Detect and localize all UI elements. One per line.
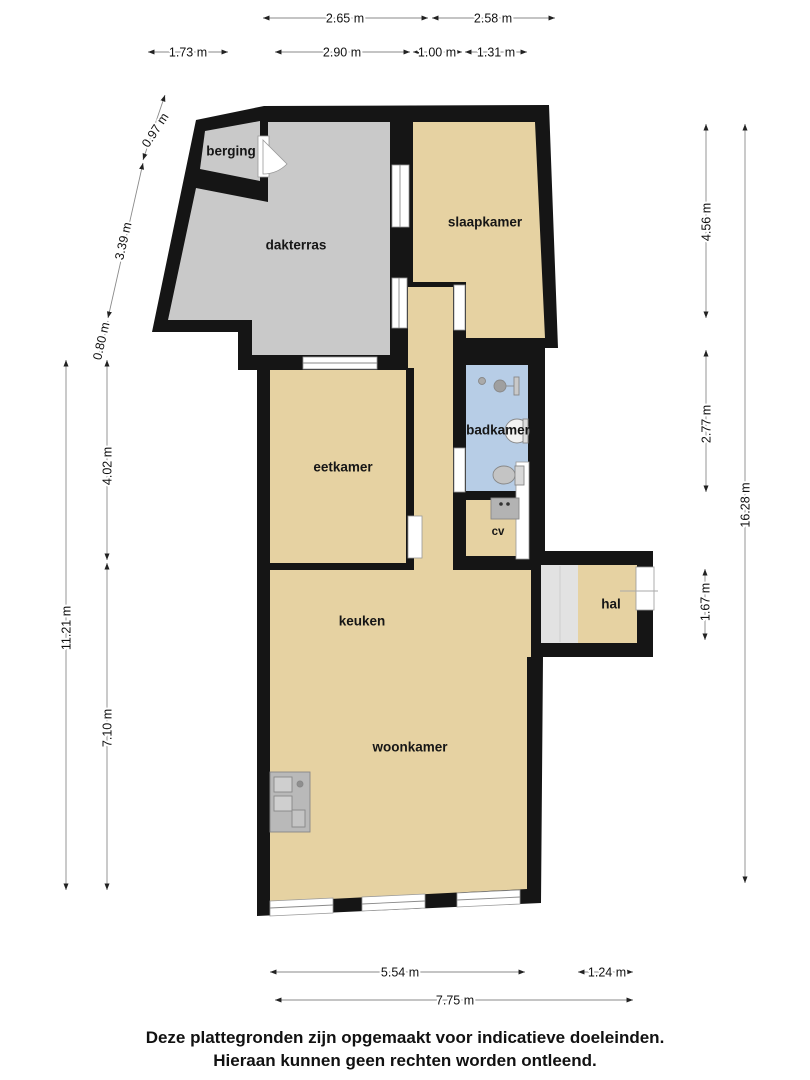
- kitchen-sink-icon: [274, 777, 292, 792]
- slaapkamer-door-opening: [454, 285, 465, 330]
- dim-label: 1.73 m: [169, 45, 207, 59]
- dim-label: 4.56 m: [699, 203, 713, 241]
- dim-label: 2.58 m: [474, 11, 512, 25]
- dim-label: 7.75 m: [436, 993, 474, 1007]
- shower-head-icon: [494, 380, 506, 392]
- room-label-keuken: keuken: [339, 614, 386, 629]
- toilet-tank-icon: [515, 466, 524, 485]
- keuken-woonkamer-floor: [270, 570, 531, 902]
- dim-label: 1.24 m: [588, 965, 626, 979]
- dim-label: 2.90 m: [323, 45, 361, 59]
- badkamer-door-opening: [454, 448, 465, 492]
- toilet-icon: [493, 466, 515, 484]
- room-label-dakterras: dakterras: [266, 238, 327, 253]
- room-label-cv: cv: [492, 526, 505, 538]
- dim-label: 2.65 m: [326, 11, 364, 25]
- dim-label: 1.67 m: [698, 583, 712, 621]
- dim-label: 11.21 m: [59, 606, 73, 650]
- disclaimer-line-1: Deze plattegronden zijn opgemaakt voor i…: [0, 1026, 810, 1049]
- room-label-hal: hal: [601, 597, 621, 612]
- dakterras-corridor-window: [392, 278, 407, 328]
- dim-label: 1.31 m: [477, 45, 515, 59]
- room-label-woonkamer: woonkamer: [371, 740, 448, 755]
- front-door-opening: [636, 567, 654, 610]
- dim-label: 7.10 m: [100, 709, 114, 747]
- kitchen-sink-icon: [274, 796, 292, 811]
- kitchen-tap-icon: [297, 781, 303, 787]
- kitchen-hob-icon: [292, 810, 305, 827]
- room-label-eetkamer: eetkamer: [313, 460, 373, 475]
- dim-label: 0.80 m: [90, 321, 112, 361]
- disclaimer-footer: Deze plattegronden zijn opgemaakt voor i…: [0, 1026, 810, 1072]
- dim-label: 16.28 m: [738, 482, 752, 527]
- woonkamer-window-left: [270, 898, 333, 916]
- dim-label: 1.00 m: [418, 45, 456, 59]
- cv-knob-icon: [499, 502, 503, 506]
- dakterras-slaapkamer-window: [392, 165, 409, 227]
- disclaimer-line-2: Hieraan kunnen geen rechten worden ontle…: [0, 1049, 810, 1072]
- dim-label: 3.39 m: [112, 221, 134, 261]
- room-label-badkamer: badkamer: [466, 423, 531, 438]
- dim-label: 0.97 m: [139, 110, 172, 150]
- cv-knob-icon: [506, 502, 510, 506]
- dim-label: 2.77 m: [699, 405, 713, 443]
- shower-mount-icon: [514, 377, 519, 395]
- eetkamer-door-opening: [408, 516, 422, 558]
- dim-label: 4.02 m: [100, 447, 114, 485]
- room-label-slaapkamer: slaapkamer: [448, 215, 523, 230]
- floorplan-drawing: 2.65 m 2.58 m 1.73 m 2.90 m 1.00 m 1.31 …: [0, 0, 810, 1080]
- room-label-berging: berging: [206, 144, 256, 159]
- shower-drain-icon: [479, 378, 486, 385]
- cv-boiler-icon: [491, 498, 519, 519]
- floorplan-page: 2.65 m 2.58 m 1.73 m 2.90 m 1.00 m 1.31 …: [0, 0, 810, 1080]
- dim-label: 5.54 m: [381, 965, 419, 979]
